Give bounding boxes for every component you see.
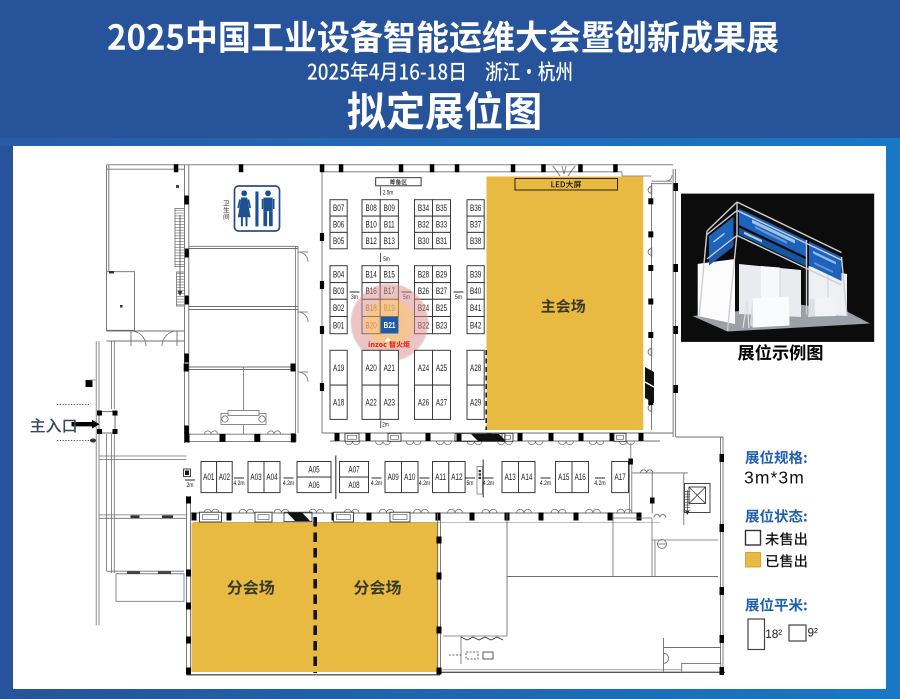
- svg-text:B15: B15: [384, 269, 395, 279]
- svg-text:B42: B42: [470, 320, 481, 330]
- svg-text:B37: B37: [470, 219, 481, 229]
- svg-text:A13: A13: [505, 472, 516, 482]
- svg-text:B30: B30: [418, 236, 429, 246]
- svg-text:2.5m: 2.5m: [383, 190, 394, 197]
- svg-text:B02: B02: [333, 303, 344, 313]
- svg-text:B26: B26: [418, 286, 429, 296]
- svg-text:9²: 9²: [808, 626, 819, 640]
- svg-text:B31: B31: [436, 236, 447, 246]
- svg-text:B34: B34: [418, 203, 430, 213]
- svg-text:B39: B39: [470, 269, 481, 279]
- svg-text:A28: A28: [470, 363, 481, 373]
- svg-text:A07: A07: [348, 464, 359, 474]
- svg-text:5m: 5m: [455, 295, 462, 302]
- svg-text:B33: B33: [436, 219, 447, 229]
- svg-text:A21: A21: [384, 363, 395, 373]
- svg-text:B36: B36: [470, 203, 481, 213]
- svg-text:B08: B08: [365, 203, 376, 213]
- svg-text:2m: 2m: [186, 483, 193, 490]
- svg-text:A18: A18: [333, 397, 344, 407]
- svg-text:B14: B14: [365, 269, 377, 279]
- svg-text:B12: B12: [365, 236, 376, 246]
- svg-text:B28: B28: [418, 269, 429, 279]
- svg-text:B07: B07: [333, 203, 344, 213]
- svg-text:B11: B11: [384, 219, 395, 229]
- svg-text:A17: A17: [614, 472, 625, 482]
- svg-text:B13: B13: [384, 236, 395, 246]
- svg-text:B21: B21: [384, 320, 396, 330]
- svg-text:A27: A27: [436, 397, 447, 407]
- svg-text:A15: A15: [558, 472, 569, 482]
- svg-text:A14: A14: [521, 472, 533, 482]
- svg-text:B27: B27: [436, 286, 447, 296]
- svg-text:B09: B09: [384, 203, 395, 213]
- svg-text:A02: A02: [219, 472, 230, 482]
- svg-text:A05: A05: [308, 464, 319, 474]
- svg-text:B32: B32: [418, 219, 429, 229]
- svg-text:B03: B03: [333, 286, 344, 296]
- svg-text:18²: 18²: [765, 627, 782, 641]
- svg-text:A09: A09: [388, 472, 399, 482]
- svg-text:4.2m: 4.2m: [419, 481, 430, 488]
- svg-text:A29: A29: [470, 397, 481, 407]
- svg-text:4.2m: 4.2m: [594, 481, 605, 488]
- svg-text:4.2m: 4.2m: [283, 481, 294, 488]
- svg-text:B23: B23: [436, 320, 447, 330]
- svg-text:A20: A20: [365, 363, 376, 373]
- svg-text:B35: B35: [436, 203, 447, 213]
- svg-text:B04: B04: [333, 269, 345, 279]
- svg-text:3m*3m: 3m*3m: [744, 468, 805, 488]
- svg-text:A12: A12: [451, 472, 462, 482]
- svg-text:A23: A23: [384, 397, 395, 407]
- svg-text:B41: B41: [470, 303, 481, 313]
- svg-text:A16: A16: [575, 472, 586, 482]
- svg-text:B05: B05: [333, 236, 344, 246]
- svg-text:B10: B10: [365, 219, 376, 229]
- svg-text:A22: A22: [365, 397, 376, 407]
- svg-text:B01: B01: [333, 320, 344, 330]
- svg-text:A06: A06: [308, 480, 319, 490]
- svg-text:B29: B29: [436, 269, 447, 279]
- svg-text:4.2m: 4.2m: [233, 481, 244, 488]
- svg-text:A10: A10: [404, 472, 415, 482]
- svg-text:A04: A04: [266, 472, 278, 482]
- svg-text:4.2m: 4.2m: [371, 481, 382, 488]
- svg-text:4.2m: 4.2m: [483, 481, 494, 488]
- svg-text:A19: A19: [333, 363, 344, 373]
- svg-text:A01: A01: [203, 472, 214, 482]
- svg-text:A11: A11: [435, 472, 446, 482]
- svg-text:B38: B38: [470, 236, 481, 246]
- svg-text:A03: A03: [250, 472, 261, 482]
- svg-text:4.2m: 4.2m: [540, 481, 551, 488]
- svg-text:B40: B40: [470, 286, 481, 296]
- svg-text:B25: B25: [436, 303, 447, 313]
- svg-text:5m: 5m: [383, 256, 390, 263]
- svg-text:B06: B06: [333, 219, 344, 229]
- svg-text:A26: A26: [418, 397, 429, 407]
- svg-text:5m: 5m: [466, 481, 473, 488]
- svg-text:A24: A24: [418, 363, 430, 373]
- svg-text:A08: A08: [348, 480, 359, 490]
- svg-text:A25: A25: [436, 363, 447, 373]
- svg-text:2m: 2m: [382, 422, 389, 429]
